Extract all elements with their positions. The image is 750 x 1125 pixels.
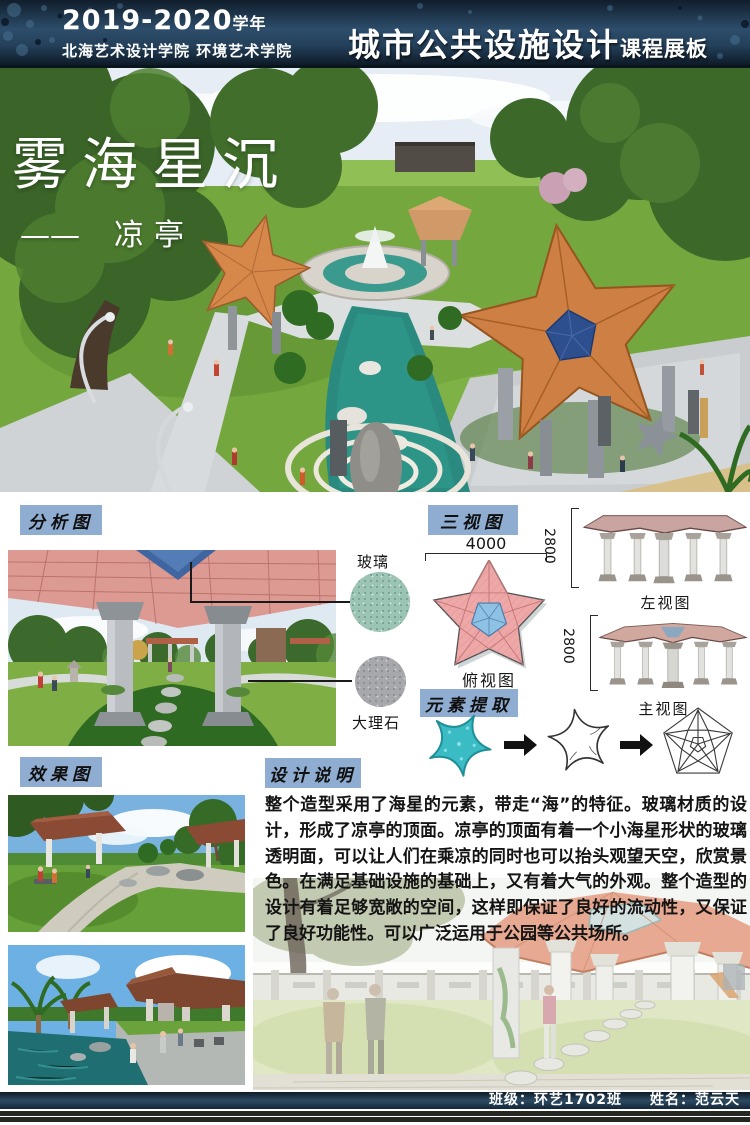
- analysis-photo: [8, 550, 336, 746]
- subtitle-dash: ——: [20, 218, 80, 253]
- left-view-height-dimension: 2800: [541, 516, 557, 576]
- effect-render-path: [8, 795, 245, 932]
- class-field: 班级：环艺1702班: [489, 1092, 622, 1108]
- front-elevation-view: [598, 612, 748, 696]
- subtitle-text: 凉亭: [114, 218, 194, 253]
- glass-material-label: 玻璃: [357, 551, 389, 572]
- design-description-text: 整个造型采用了海星的元素，带走“海”的特征。玻璃材质的设计，形成了凉亭的顶面。凉…: [265, 793, 747, 948]
- bottom-stripe-1: [0, 1111, 750, 1116]
- teal-starfish-illustration: [418, 710, 500, 778]
- starfish-sketch: [544, 706, 616, 776]
- marble-callout-line: [248, 680, 352, 682]
- glass-material-swatch: [350, 572, 410, 632]
- water-plaza-render: [8, 945, 245, 1085]
- glass-callout-line-vertical: [190, 562, 192, 602]
- arrow-right-icon: [504, 732, 538, 758]
- project-subtitle: ——凉亭: [20, 210, 194, 254]
- geometric-star-diagram: [658, 704, 738, 780]
- left-elevation-view: [582, 505, 748, 590]
- course-title: 城市公共设施设计: [348, 26, 620, 64]
- arrow-right-icon-2: [620, 732, 654, 758]
- academic-year: 2019-2020学年: [62, 6, 292, 39]
- glass-callout-line-horizontal: [190, 601, 350, 603]
- pavilion-front-elevation-drawing: [598, 612, 748, 696]
- header-title-block: 城市公共设施设计课程展板: [348, 20, 708, 66]
- header-school-block: 2019-2020学年 北海艺术设计学院 环境艺术学院: [62, 6, 292, 61]
- left-view-dimension-bracket: [571, 508, 579, 588]
- year-text: 2019-2020: [62, 5, 233, 36]
- school-name: 北海艺术设计学院 环境艺术学院: [62, 40, 292, 61]
- three-view-section-label: 三视图: [428, 505, 518, 535]
- name-field: 姓名：范云天: [650, 1092, 740, 1108]
- design-poster: 2019-2020学年 北海艺术设计学院 环境艺术学院 城市公共设施设计课程展板: [0, 0, 750, 1125]
- starfish-outline-drawing: [544, 706, 616, 776]
- year-suffix-text: 学年: [233, 14, 267, 33]
- park-path-render: [8, 795, 245, 932]
- front-view-height-dimension: 2800: [560, 616, 576, 676]
- header-band: 2019-2020学年 北海艺术设计学院 环境艺术学院 城市公共设施设计课程展板: [0, 0, 750, 68]
- pavilion-top-view-drawing: [424, 560, 554, 672]
- board-subtitle: 课程展板: [620, 37, 708, 61]
- description-section-label: 设计说明: [265, 758, 361, 788]
- left-view-label: 左视图: [618, 592, 714, 613]
- pavilion-left-elevation-drawing: [582, 505, 748, 590]
- effect-section-label: 效果图: [20, 757, 102, 787]
- hero-aerial-render: 雾海星沉 ——凉亭: [0, 68, 750, 492]
- front-view-dimension-bracket: [590, 615, 598, 691]
- effect-render-water: [8, 945, 245, 1085]
- star-top-view: [424, 560, 554, 672]
- project-title: 雾海星沉: [12, 120, 292, 201]
- marble-material-swatch: [355, 656, 406, 707]
- pavilion-underside-illustration: [8, 550, 336, 746]
- top-view-label: 俯视图: [437, 667, 541, 691]
- footer-band: 班级：环艺1702班姓名：范云天: [0, 1092, 750, 1109]
- star-wireframe-drawing: [658, 704, 738, 780]
- analysis-section-label: 分析图: [20, 505, 102, 535]
- width-dimension: 4000: [425, 534, 547, 553]
- marble-material-label: 大理石: [352, 712, 400, 733]
- bottom-stripe-2: [0, 1117, 750, 1122]
- starfish-photo: [418, 710, 500, 778]
